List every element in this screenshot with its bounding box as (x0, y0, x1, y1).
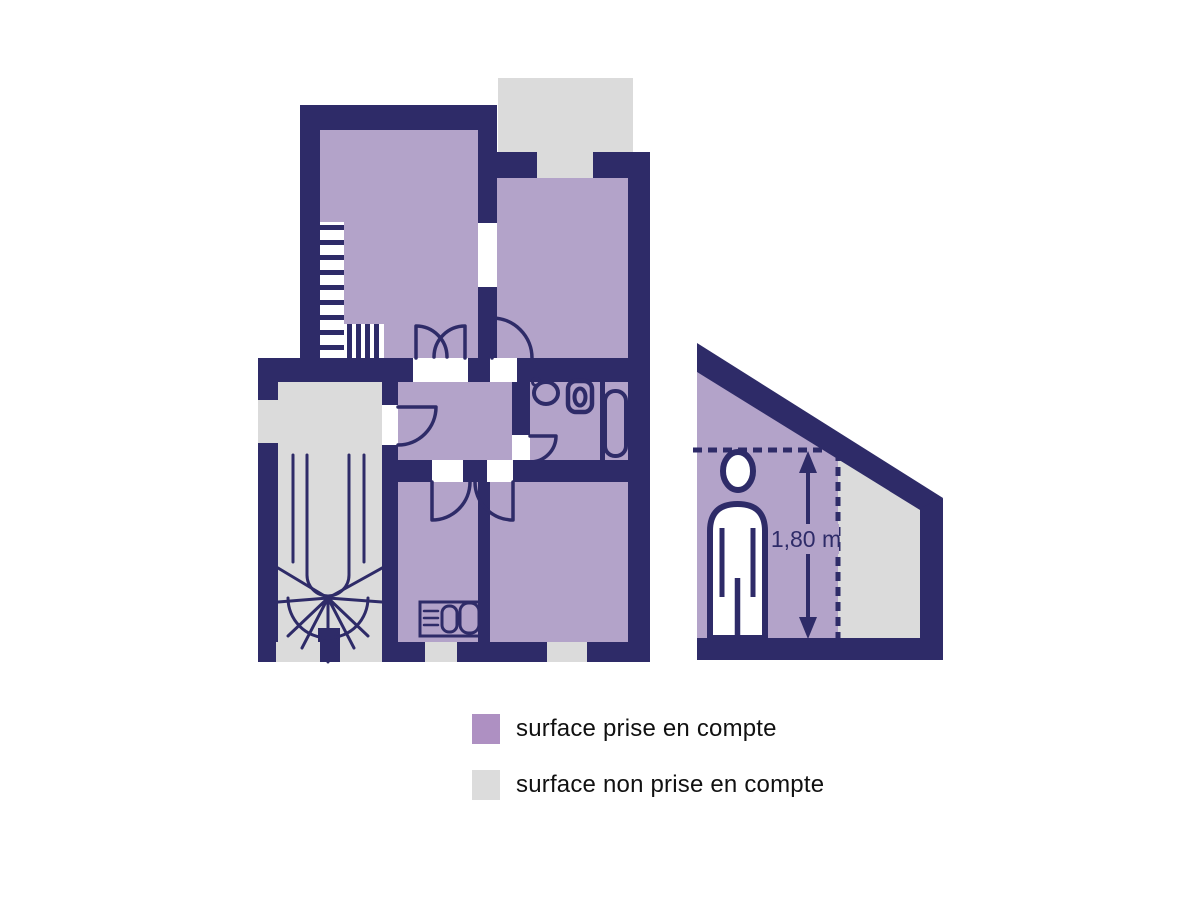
legend: surface prise en compte surface non pris… (472, 712, 824, 824)
opening-room-divider (478, 223, 497, 287)
attic-section: 1,80 m (693, 343, 943, 660)
floor-plan (258, 78, 650, 662)
wall-left-upper (300, 105, 320, 378)
stair-step (347, 324, 352, 358)
wall-right-outer (628, 152, 650, 662)
stair-step (320, 225, 344, 230)
balcony (498, 78, 633, 152)
section-right-wall (920, 498, 943, 660)
height-label: 1,80 m (771, 526, 841, 552)
legend-row-not-counted: surface non prise en compte (472, 768, 824, 802)
wall-top (300, 105, 497, 130)
opening-bottom-kitchen (425, 642, 457, 662)
person-head (723, 452, 753, 490)
opening-kitchen-door (432, 460, 463, 482)
opening-stair-bottom-right (340, 642, 382, 662)
opening-stair-landing (258, 400, 278, 443)
stair-step (320, 315, 344, 320)
opening-upper-right-door (490, 358, 517, 382)
figure-canvas: 1,80 m surface prise en compte surface n… (0, 0, 1200, 900)
legend-label-counted: surface prise en compte (516, 715, 777, 743)
section-floor (697, 638, 943, 660)
opening-entrance-door (382, 405, 398, 445)
opening-balcony-door (537, 152, 593, 178)
opening-bathroom-door (512, 435, 530, 460)
opening-bottom-room (547, 642, 587, 662)
upper-right-room (488, 165, 640, 370)
legend-swatch-not-counted (472, 770, 500, 800)
stair-step (320, 330, 344, 335)
stair-step (374, 324, 379, 358)
opening-stair-bottom-left (276, 642, 320, 662)
stair-step (320, 285, 344, 290)
stair-step (320, 255, 344, 260)
stair-step (365, 324, 370, 358)
stair-step (320, 270, 344, 275)
stair-step (320, 300, 344, 305)
stair-step (356, 324, 361, 358)
stair-step (320, 345, 344, 350)
legend-swatch-counted (472, 714, 500, 744)
kitchen-and-lower-room (390, 470, 640, 650)
legend-row-counted: surface prise en compte (472, 712, 824, 746)
legend-label-not-counted: surface non prise en compte (516, 771, 824, 799)
opening-lower-room-door (487, 460, 513, 482)
stair-step (320, 240, 344, 245)
opening-double-door (413, 358, 468, 382)
